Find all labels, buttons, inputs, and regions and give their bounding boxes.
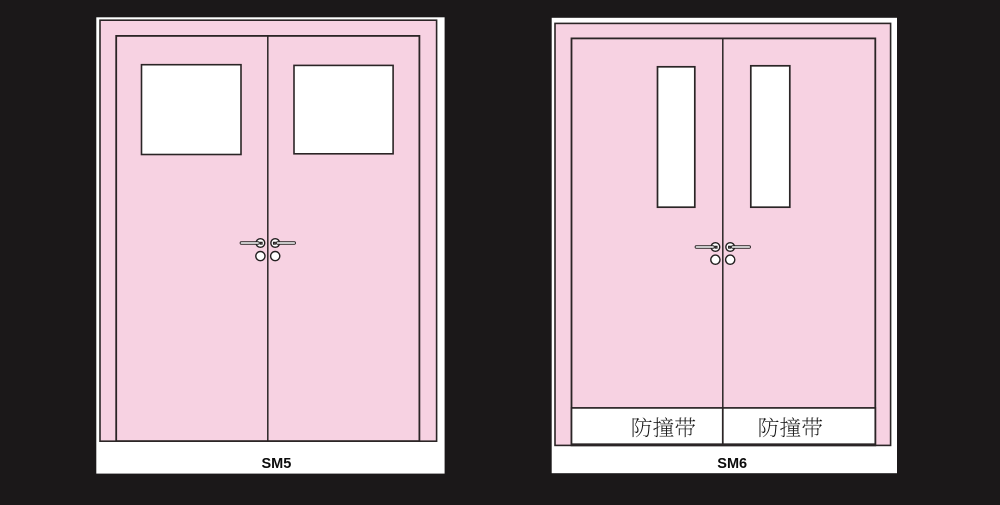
svg-text:SM6: SM6 [717,456,747,472]
svg-text:SM5: SM5 [261,456,291,472]
